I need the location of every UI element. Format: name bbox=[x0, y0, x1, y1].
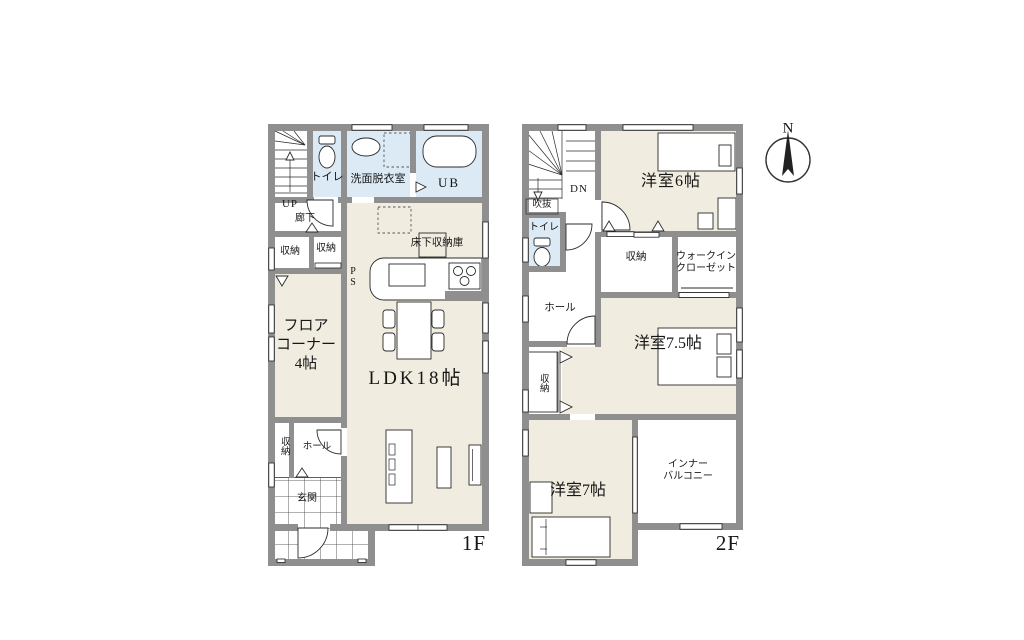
floorplan-page: N トイレ 洗面脱衣室 UB UP 廊下 収納 収納 P S 床下収納庫 フロア… bbox=[0, 0, 1024, 640]
stairs-1f bbox=[275, 131, 307, 193]
floorplan-canvas bbox=[0, 0, 1024, 640]
floor2-plan bbox=[522, 124, 743, 566]
compass-needle-icon bbox=[782, 130, 794, 176]
compass bbox=[766, 130, 810, 182]
floor1-plan bbox=[268, 124, 489, 566]
stairs-2f bbox=[528, 131, 595, 200]
floor1-room-fills bbox=[275, 131, 482, 559]
